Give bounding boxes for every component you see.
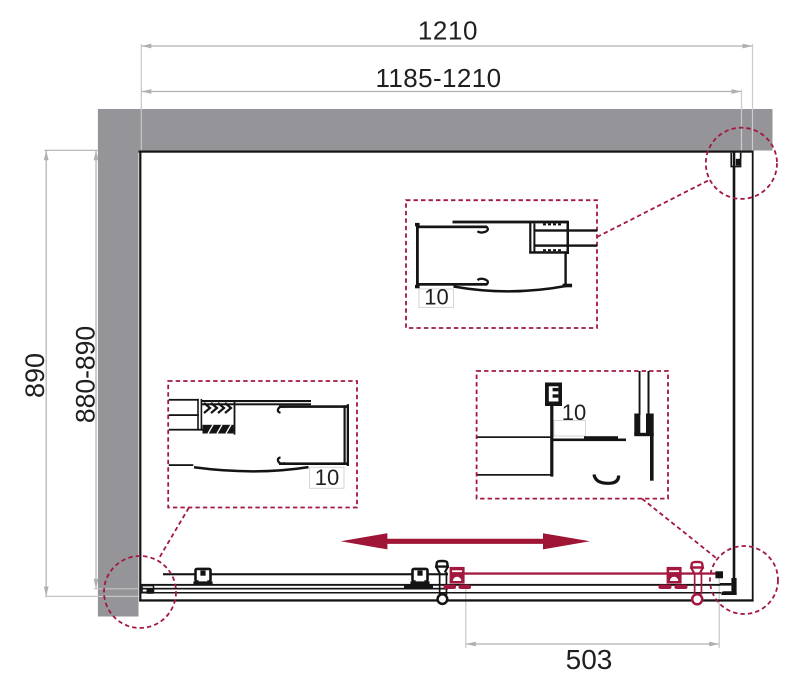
svg-text:890: 890 — [20, 353, 50, 398]
svg-text:10: 10 — [315, 465, 339, 490]
svg-text:503: 503 — [566, 644, 613, 675]
svg-text:1185-1210: 1185-1210 — [375, 63, 501, 93]
svg-text:10: 10 — [424, 285, 448, 310]
svg-text:880-890: 880-890 — [71, 326, 101, 423]
svg-text:1210: 1210 — [418, 16, 478, 46]
